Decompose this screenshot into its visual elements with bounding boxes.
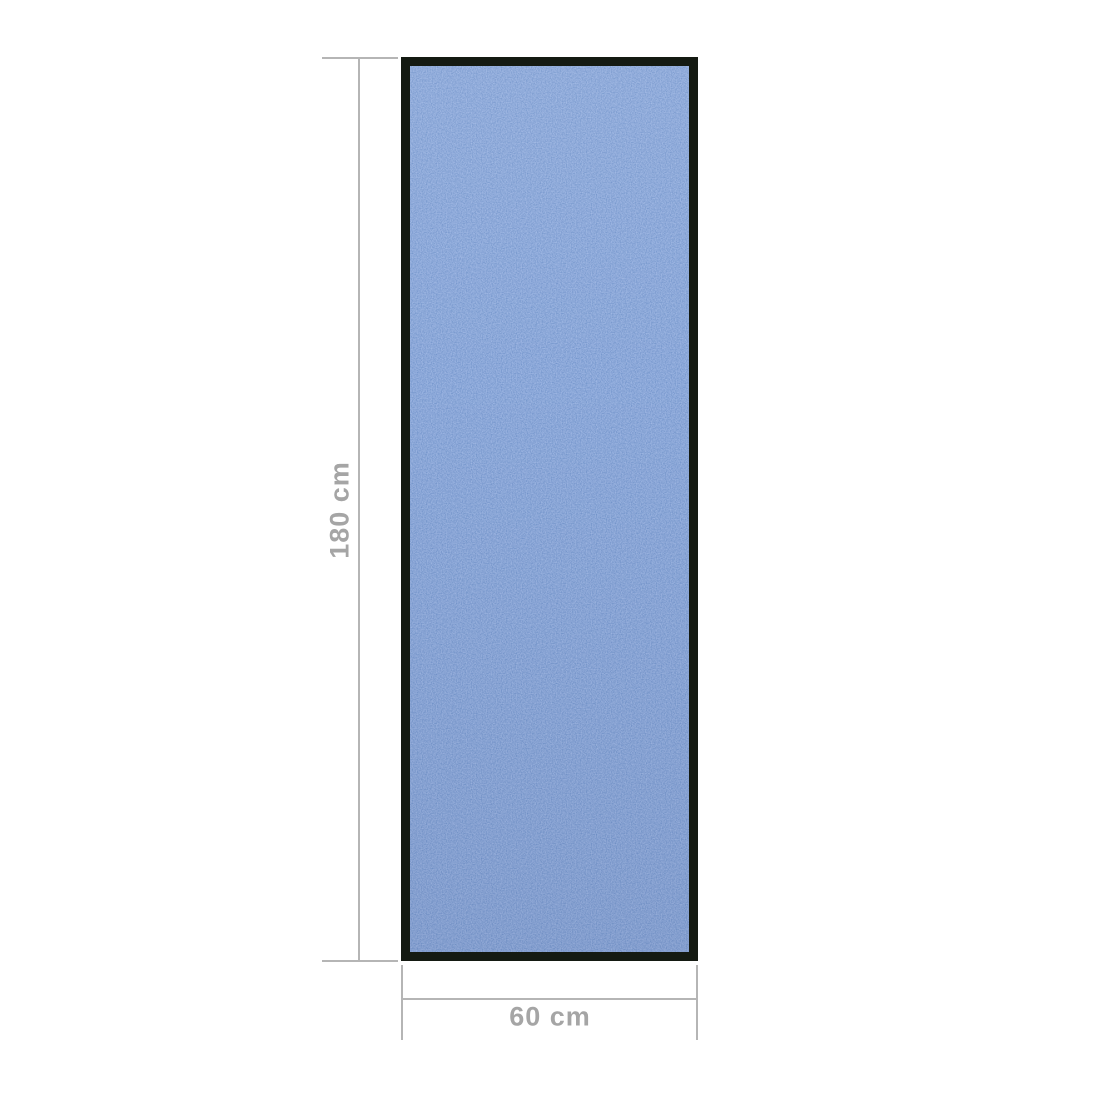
width-dim-line (402, 998, 698, 1000)
height-dim-tick-top (322, 57, 398, 59)
height-dim-line (358, 57, 360, 962)
width-dim-label: 60 cm (509, 1002, 591, 1033)
product-dimension-image: 180 cm 60 cm (0, 0, 1100, 1100)
doormat (401, 57, 698, 961)
height-dim-tick-bottom (322, 960, 398, 962)
carpet-texture (410, 66, 689, 952)
height-dim-label: 180 cm (325, 461, 356, 559)
width-dim-ext-left (401, 965, 403, 1040)
width-dim-ext-right (696, 965, 698, 1040)
